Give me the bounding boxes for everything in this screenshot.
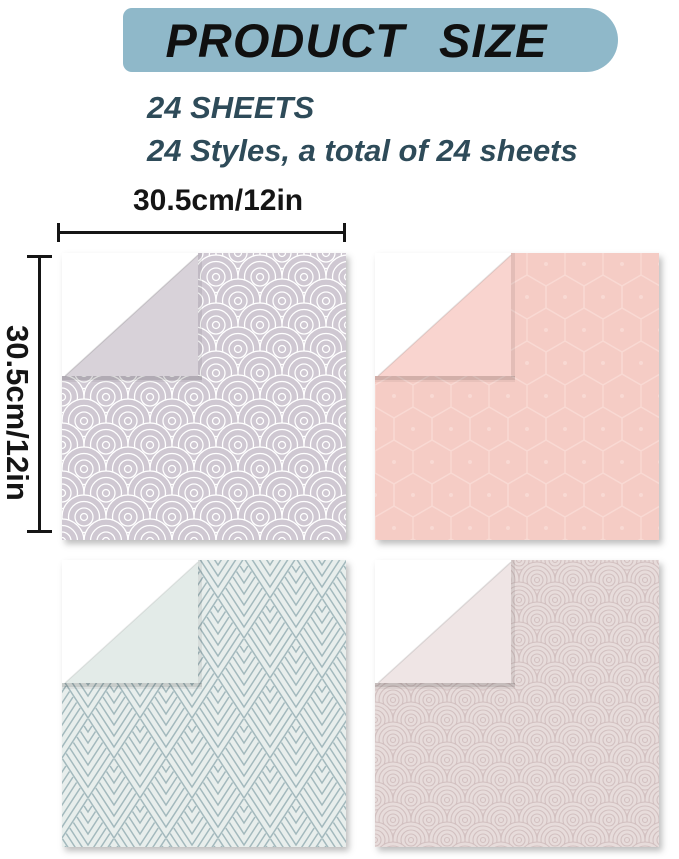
page-title: PRODUCT SIZE (166, 13, 548, 68)
styles-count-text: 24 Styles, a total of 24 sheets (147, 129, 578, 172)
width-dimension-tick-left (57, 223, 60, 242)
height-dimension-tick-bottom (27, 530, 52, 533)
paper-swatch-mauve-scallop (375, 560, 659, 847)
mint-leaf-pattern-art (62, 560, 346, 847)
lavender-fan-pattern-art (62, 253, 346, 540)
product-size-infographic: PRODUCT SIZE 24 SHEETS 24 Styles, a tota… (0, 0, 679, 859)
width-dimension-line (58, 231, 346, 234)
product-size-banner: PRODUCT SIZE (123, 8, 618, 72)
height-dimension-line (38, 257, 41, 533)
paper-swatch-lavender-fan (62, 253, 346, 540)
height-dimension-label: 30.5cm/12in (0, 325, 37, 495)
mauve-scallop-pattern-art (375, 560, 659, 847)
width-dimension-label: 30.5cm/12in (133, 184, 295, 220)
paper-swatch-pink-honeycomb (375, 253, 659, 540)
height-dimension-tick-top (27, 255, 52, 258)
subtitle-block: 24 SHEETS 24 Styles, a total of 24 sheet… (147, 86, 578, 172)
pink-honeycomb-pattern-art (375, 253, 659, 540)
paper-swatch-mint-leaf (62, 560, 346, 847)
sheet-count-text: 24 SHEETS (147, 86, 578, 129)
width-dimension-tick-right (343, 223, 346, 242)
